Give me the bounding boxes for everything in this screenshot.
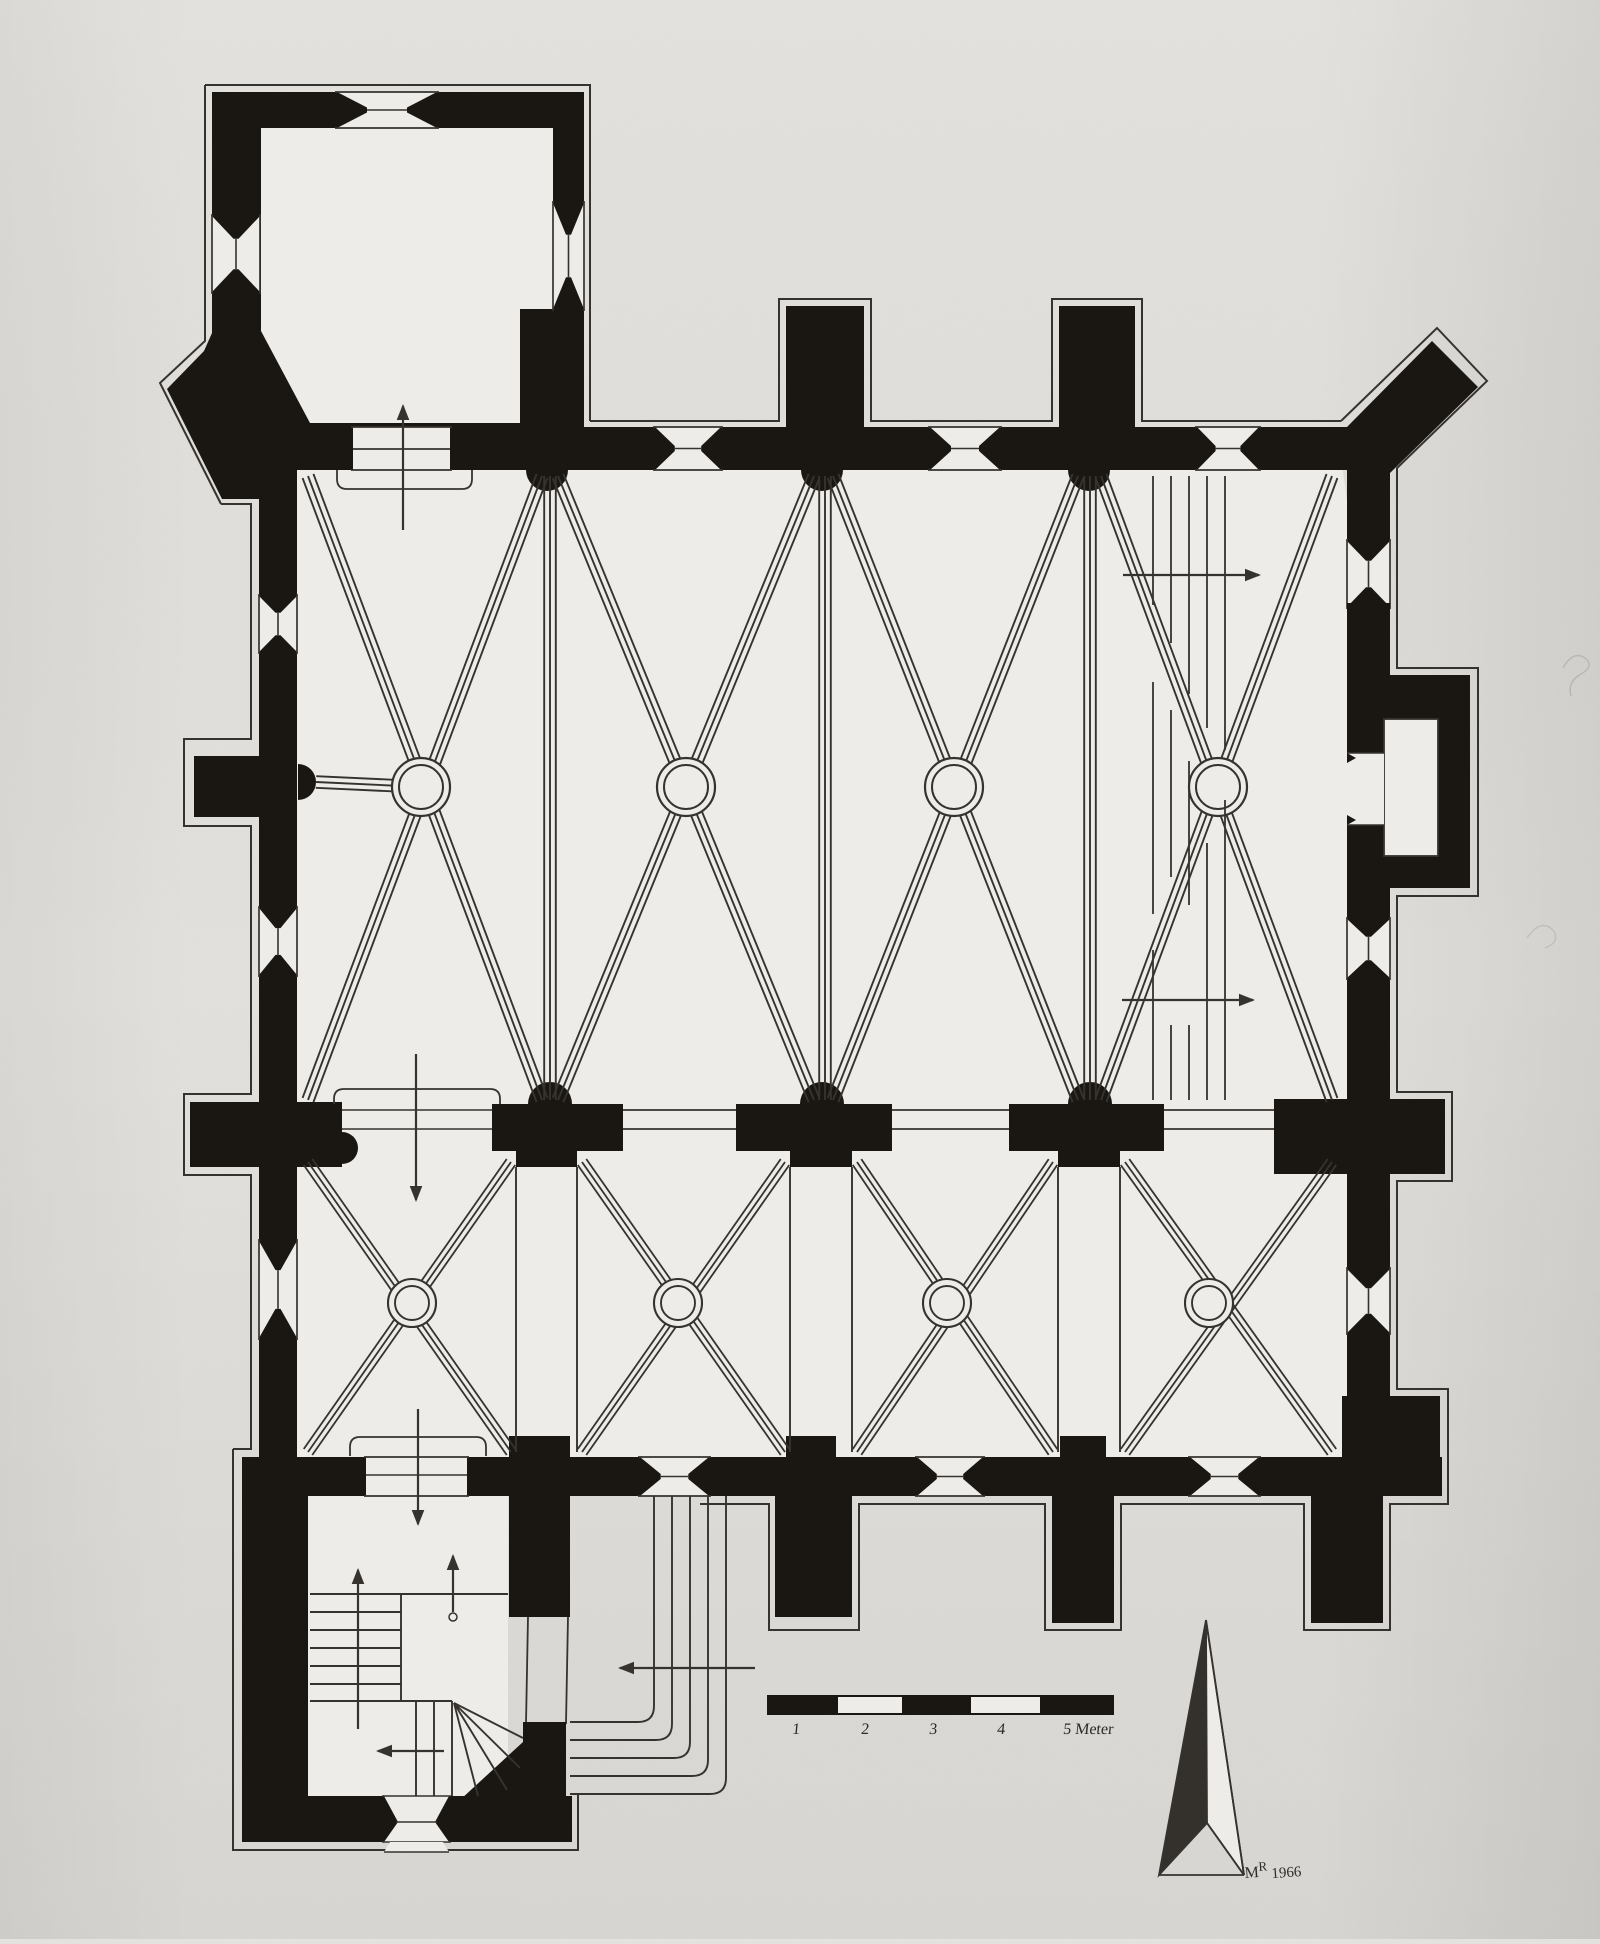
svg-text:5 Meter: 5 Meter (1062, 1721, 1115, 1738)
